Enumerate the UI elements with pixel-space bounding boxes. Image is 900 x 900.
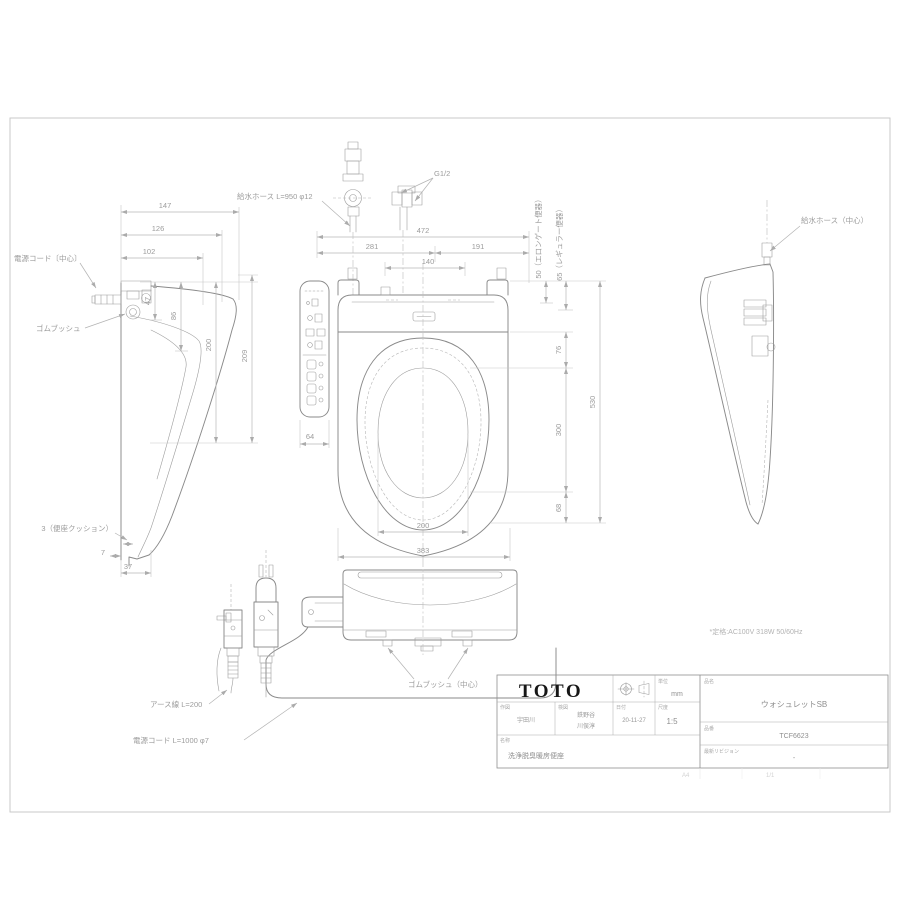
- label-power-cord: 電源コード L=1000 φ7: [133, 736, 209, 745]
- top-view: G1/2 給水ホース L=950 φ12: [237, 142, 606, 561]
- left-side-view: 147 126 102 47 86 200 209 3（便座クッション） 7 3…: [14, 201, 258, 577]
- scale-value: 1:5: [666, 717, 678, 726]
- label-seat-cushion: 3（便座クッション）: [41, 523, 113, 533]
- toto-logo: TOTO: [519, 681, 583, 702]
- remote-control-panel: 64: [300, 281, 329, 448]
- date-value: 20-11-27: [622, 718, 646, 724]
- label-power-cord-center: 電源コード〔中心〕: [14, 253, 82, 263]
- dim-281: 281: [366, 242, 379, 251]
- unit-value: mm: [671, 691, 683, 698]
- drafter-name: 宇田川: [517, 716, 535, 724]
- number-label: 品番: [704, 725, 714, 732]
- unit-label: 単位: [658, 678, 668, 685]
- dim-50-elongated: 50（エロンゲート便器）: [533, 195, 543, 278]
- footer-sheet-size: A4: [682, 773, 690, 779]
- title-block: TOTO 単位 mm 作図 宇田川 検図 鉄野谷 川俣淳 日付 20-11-27…: [497, 675, 888, 779]
- dim-7: 7: [101, 548, 105, 557]
- dim-530: 530: [588, 396, 597, 409]
- dim-37: 37: [124, 562, 132, 571]
- product-label: 品名: [704, 678, 714, 685]
- label-supply-hose-right: 給水ホース（中心）: [801, 215, 868, 225]
- product-value: ウォシュレットSB: [761, 700, 828, 709]
- dim-200-left: 200: [204, 339, 213, 352]
- dim-65-regular: 65（レギュラー便器）: [554, 205, 564, 281]
- drafter-label: 作図: [500, 704, 510, 711]
- dim-68: 68: [554, 504, 563, 512]
- label-supply-hose: 給水ホース L=950 φ12: [237, 191, 313, 201]
- dim-472: 472: [417, 226, 430, 235]
- third-angle-projection-icon: [618, 681, 649, 697]
- dim-191: 191: [472, 242, 485, 251]
- date-label: 日付: [616, 704, 626, 711]
- name-value: 洗浄脱臭暖房便座: [508, 751, 564, 760]
- right-side-view: 給水ホース（中心）: [701, 200, 869, 524]
- power-plug-and-earth: アース線 L=200 電源コード L=1000 φ7: [133, 550, 297, 745]
- name-label: 名称: [500, 737, 510, 744]
- dim-47: 47: [143, 297, 152, 305]
- checker-name-2: 川俣淳: [577, 722, 595, 730]
- drawing-sheet: 147 126 102 47 86 200 209 3（便座クッション） 7 3…: [0, 0, 900, 900]
- rating-note: *定格:AC100V 318W 50/60Hz: [710, 627, 803, 636]
- front-view: ゴムブッシュ（中心）: [266, 560, 556, 698]
- revision-value: -: [793, 755, 796, 762]
- dim-76: 76: [554, 346, 563, 354]
- dim-300: 300: [554, 424, 563, 437]
- sheet-border: [10, 118, 890, 812]
- scale-label: 尺度: [658, 704, 668, 711]
- dim-140: 140: [422, 257, 435, 266]
- dim-64: 64: [306, 432, 314, 441]
- dim-383: 383: [417, 546, 430, 555]
- dim-126: 126: [152, 224, 165, 233]
- number-value: TCF6623: [779, 733, 808, 740]
- dim-147: 147: [159, 201, 172, 210]
- revision-label: 最新リビジョン: [704, 748, 739, 755]
- label-rubber-bush: ゴムブッシュ: [36, 323, 81, 333]
- dim-86: 86: [169, 312, 178, 320]
- dim-102: 102: [143, 247, 156, 256]
- label-earth-wire: アース線 L=200: [150, 699, 202, 709]
- dim-200-top: 200: [417, 521, 430, 530]
- technical-drawing: 147 126 102 47 86 200 209 3（便座クッション） 7 3…: [0, 0, 900, 900]
- checker-label: 検図: [558, 704, 568, 711]
- footer-page: 1/1: [766, 773, 775, 779]
- label-rubber-bush-center: ゴムブッシュ（中心）: [408, 679, 483, 689]
- dim-209: 209: [240, 350, 249, 363]
- checker-name-1: 鉄野谷: [577, 711, 595, 719]
- label-g-half: G1/2: [434, 169, 450, 178]
